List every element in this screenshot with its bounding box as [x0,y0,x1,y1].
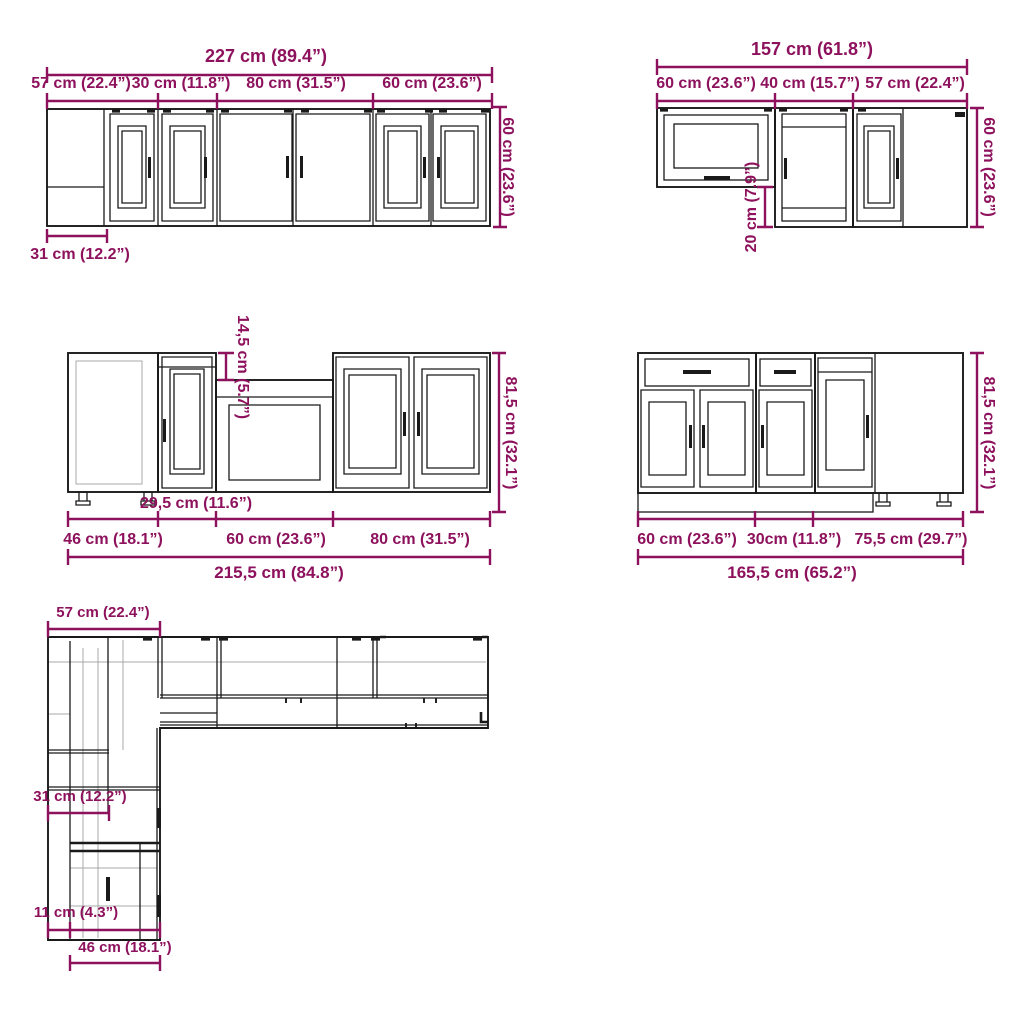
wall-run-left-dims: 227 cm (89.4”) 57 cm (22.4”) 30 cm (11.8… [30,46,516,263]
segment-label-30: 30cm (11.8”) [747,531,841,548]
base-run-left-cabinets [68,353,490,505]
corner-door [110,114,154,221]
segment-dim-line [638,511,963,527]
drawer-60-handle [683,370,711,374]
glass-door-handle [704,176,730,180]
base-depth-label: 46 cm (18.1”) [78,939,171,956]
side-offset-label: 11 cm (4.3”) [34,904,118,921]
glass-panel [674,124,758,168]
segment-label-60: 60 cm (23.6”) [226,531,326,548]
total-width-label: 165,5 cm (65.2”) [727,563,856,582]
doors-80cm [220,114,370,221]
wall-run-right: 157 cm (61.8”) 60 cm (23.6”) 40 cm (15.7… [656,39,997,252]
height-label: 81,5 cm (32.1”) [502,377,519,490]
plan-handles [106,808,161,917]
base-run-right: 60 cm (23.6”) 30cm (11.8”) 75,5 cm (29.7… [637,353,997,582]
door-29-5-handle [163,419,166,442]
wall-run-right-cabinets [657,108,967,227]
drawer-30-handle [774,370,796,374]
door-30-handle [761,425,764,448]
doors-80-handles [403,412,420,436]
segment-label-46: 46 cm (18.1”) [63,531,163,548]
doors-60-handles [689,425,705,448]
door-40cm [782,114,846,221]
segment-label-60: 60 cm (23.6”) [656,75,756,92]
total-width-dim-line [657,59,967,75]
doors-80 [336,357,487,488]
door-30 [759,390,812,487]
door-40cm-handle [784,158,787,179]
corner-hinge-mark [955,112,965,117]
segment-dim-line [68,511,490,527]
corner-cabinet-75-5 [815,353,963,493]
base-depth-dim-line [70,955,160,971]
cabinet-80 [333,353,490,492]
recess-label: 14,5 cm (5.7”) [234,315,251,419]
segment-label-80: 80 cm (31.5”) [370,531,470,548]
segment-label-80: 80 cm (31.5”) [246,75,346,92]
return-depth-dim-line [47,229,107,243]
base-run-right-cabinets [638,353,963,512]
top-width-label: 57 cm (22.4”) [56,604,149,621]
corner-base-cabinet [68,353,158,492]
segment-label-57: 57 cm (22.4”) [865,75,965,92]
base-run-left-dims: 14,5 cm (5.7”) 81,5 cm (32.1”) 29,5 cm (… [63,315,519,582]
recess-dim-line [218,353,234,380]
cabinet-dividers [47,109,431,226]
segment-label-30: 30 cm (11.8”) [132,75,231,92]
corner-legs [876,493,951,506]
segment-label-57: 57 cm (22.4”) [31,75,131,92]
side-offset-dim-line [48,922,160,938]
wall-depth-dim-line [48,805,109,821]
drop-label: 20 cm (7.9”) [743,162,760,253]
base-run-left: 14,5 cm (5.7”) 81,5 cm (32.1”) 29,5 cm (… [63,315,519,582]
segment-label-40: 40 cm (15.7”) [760,75,860,92]
top-width-dim-line [48,621,160,637]
sink-cabinet-frame [216,397,333,480]
plan-corner-marks [380,637,488,722]
segment-dim-line [47,93,492,109]
diagram-canvas: 227 cm (89.4”) 57 cm (22.4”) 30 cm (11.8… [0,0,1024,1024]
segment-label-29-5: 29,5 cm (11.6”) [140,495,252,512]
door-40cm-rails [782,127,846,208]
segment-label-60: 60 cm (23.6”) [382,75,482,92]
total-width-label: 227 cm (89.4”) [205,46,327,66]
door-29-5 [158,357,216,488]
corner-door-handle [896,158,899,179]
height-label: 60 cm (23.6”) [499,117,516,217]
segment-label-60: 60 cm (23.6”) [637,531,737,548]
corner-base-inner [76,361,142,484]
corner-door [857,114,901,221]
total-width-label: 215,5 cm (84.8”) [214,563,343,582]
wall-run-left: 227 cm (89.4”) 57 cm (22.4”) 30 cm (11.8… [30,46,516,263]
plan-handle-ticks [286,698,436,728]
cabinet-dimension-diagram: 227 cm (89.4”) 57 cm (22.4”) 30 cm (11.8… [0,0,1024,1024]
return-depth-label: 31 cm (12.2”) [30,246,130,263]
plinth [638,493,873,512]
doors-60 [641,390,753,487]
total-width-label: 157 cm (61.8”) [751,39,873,59]
plan-top-arm-lines [158,637,488,728]
door-handles [148,156,440,178]
wall-run-left-cabinets [47,109,490,226]
segment-dim-line [657,93,967,109]
base-run-right-dims: 60 cm (23.6”) 30cm (11.8”) 75,5 cm (29.7… [637,353,997,582]
wall-depth-label: 31 cm (12.2”) [33,788,126,805]
segment-label-75-5: 75,5 cm (29.7”) [855,531,968,548]
height-label: 81,5 cm (32.1”) [980,377,997,490]
plan-view: 57 cm (22.4”) 31 cm (12.2”) 11 cm (4.3”)… [33,604,488,971]
corner-door-handle [866,415,869,438]
height-label: 60 cm (23.6”) [980,117,997,217]
